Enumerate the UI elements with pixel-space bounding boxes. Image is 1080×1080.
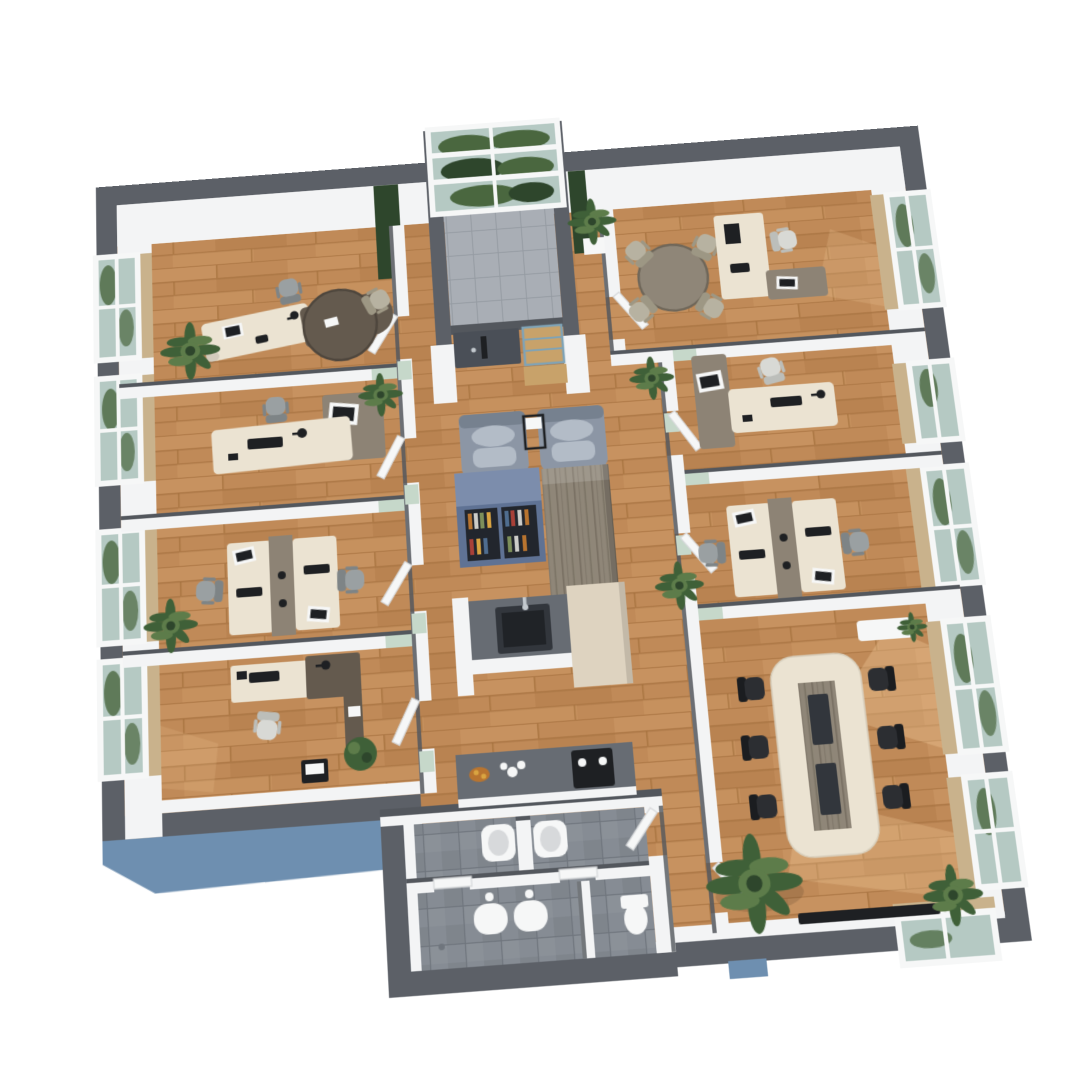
door-restroom-right[interactable] <box>559 867 597 880</box>
timber-slat-screen <box>523 325 565 365</box>
double-workstation[interactable] <box>726 494 847 602</box>
basin[interactable] <box>481 823 517 862</box>
conference-chair[interactable] <box>748 793 778 821</box>
conference-chair[interactable] <box>736 675 765 702</box>
window-unit <box>97 655 162 782</box>
entrance-door[interactable] <box>453 328 521 368</box>
conference-chair[interactable] <box>740 734 769 761</box>
entry-step <box>524 364 568 386</box>
conference-chair[interactable] <box>867 666 897 693</box>
scene-rotation <box>0 0 1080 1080</box>
armchair[interactable] <box>537 405 609 471</box>
conference-chair[interactable] <box>876 724 906 751</box>
double-workstation[interactable] <box>227 532 341 640</box>
door-restroom-left[interactable] <box>434 876 472 889</box>
window-unit <box>93 251 154 364</box>
wardrobe-cabinet[interactable] <box>541 464 619 595</box>
blue-facade-notch <box>728 958 768 979</box>
window-unit <box>892 357 966 445</box>
floor-plan-render <box>0 0 1080 1080</box>
conference-chair[interactable] <box>881 783 911 811</box>
floor-plan-svg <box>0 8 1080 1080</box>
lobby-stub-left <box>431 344 458 404</box>
printer-stand[interactable] <box>301 758 329 783</box>
scene-perspective <box>0 8 1080 1080</box>
coffee-machine[interactable] <box>571 748 615 789</box>
bookcase[interactable] <box>454 467 546 568</box>
floor-lobby-tile <box>443 207 563 334</box>
basin[interactable] <box>533 819 569 858</box>
armchair[interactable] <box>458 411 529 477</box>
glass-facade <box>425 117 567 217</box>
